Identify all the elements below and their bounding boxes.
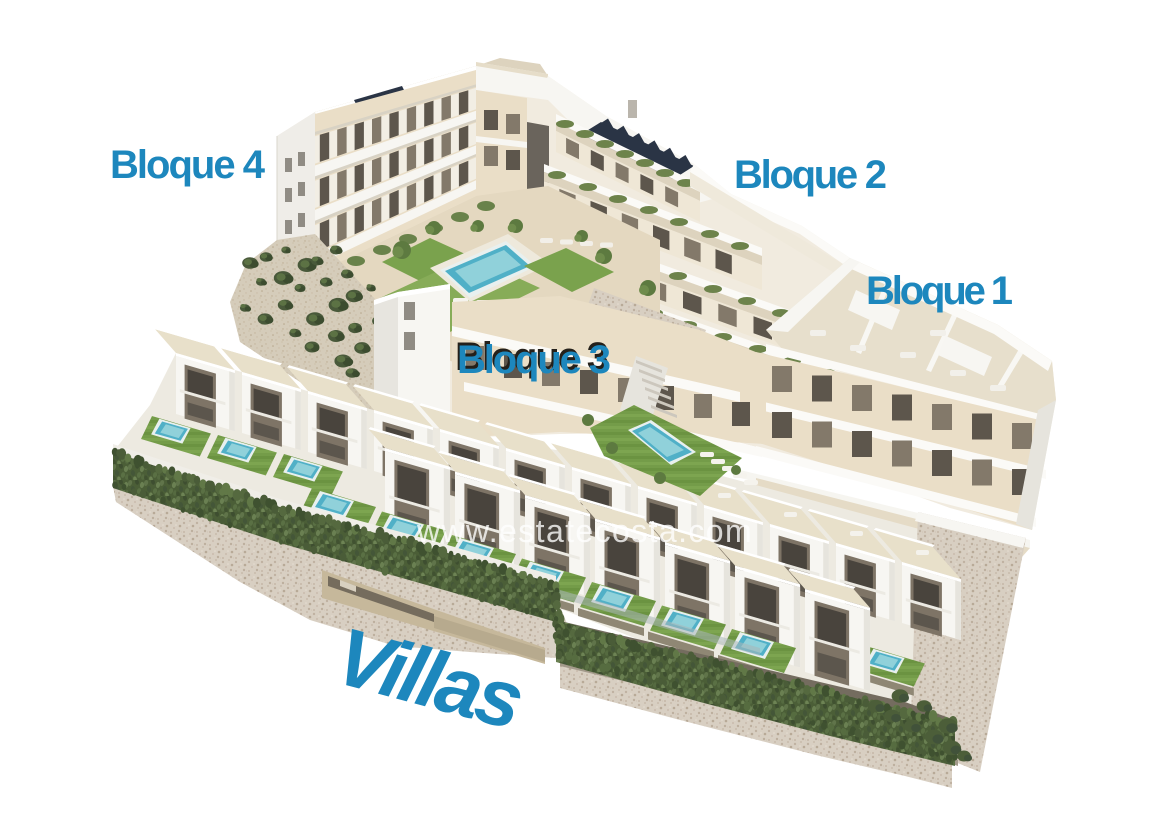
svg-text:Bloque 2: Bloque 2 bbox=[734, 153, 887, 197]
svg-text:Bloque 3: Bloque 3 bbox=[457, 338, 611, 382]
svg-text:Bloque 1: Bloque 1 bbox=[866, 269, 1013, 313]
svg-text:www.estatecosta.com: www.estatecosta.com bbox=[416, 513, 753, 549]
svg-text:Bloque 4: Bloque 4 bbox=[110, 143, 266, 187]
